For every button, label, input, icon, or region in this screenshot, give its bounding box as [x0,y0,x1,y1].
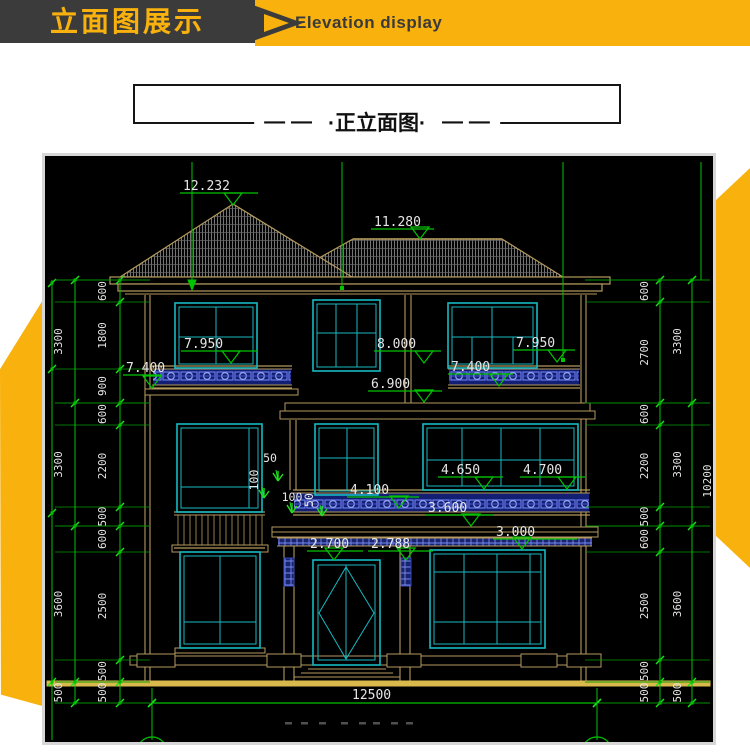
svg-text:3.600: 3.600 [428,501,467,516]
decorative-triangle-right [716,168,750,568]
svg-text:7.950: 7.950 [184,337,223,352]
svg-text:4.700: 4.700 [523,463,562,478]
title-dash-right: — — [442,110,490,134]
svg-text:3300: 3300 [671,451,684,478]
svg-text:7.400: 7.400 [126,361,165,376]
drawing-title: — — ·正立面图· — — [254,107,500,137]
svg-text:3600: 3600 [52,591,65,618]
svg-text:8.000: 8.000 [377,337,416,352]
svg-text:2700: 2700 [638,339,651,366]
play-arrow-icon [253,0,309,51]
svg-text:50: 50 [302,493,316,507]
svg-text:100: 100 [282,490,303,504]
svg-text:3300: 3300 [52,328,65,355]
svg-text:7.950: 7.950 [516,336,555,351]
svg-text:1800: 1800 [96,322,109,349]
svg-text:100: 100 [247,470,261,491]
svg-text:2.700: 2.700 [310,537,349,552]
cad-elevation-panel: 6001800900600220050060025005005003300330… [42,153,716,745]
svg-text:12500: 12500 [352,688,391,703]
svg-text:12.232: 12.232 [183,179,230,194]
title-label: ·正立面图· [328,107,426,137]
svg-text:2200: 2200 [638,453,651,480]
svg-text:600: 600 [638,404,651,424]
svg-text:3600: 3600 [671,591,684,618]
svg-text:600: 600 [96,281,109,301]
page: Elevation display 立面图展示 — — ·正立面图· — — 6… [0,0,750,753]
svg-text:2500: 2500 [638,593,651,620]
svg-text:11.280: 11.280 [374,215,421,230]
svg-text:500: 500 [96,661,109,681]
svg-text:600: 600 [96,529,109,549]
svg-text:4.650: 4.650 [441,463,480,478]
svg-text:50: 50 [263,451,277,465]
header-title-zh: 立面图展示 [0,0,255,43]
svg-text:2500: 2500 [96,593,109,620]
svg-text:500: 500 [96,507,109,527]
svg-text:500: 500 [52,683,65,703]
svg-text:4.100: 4.100 [350,483,389,498]
svg-text:900: 900 [96,376,109,396]
svg-text:600: 600 [96,404,109,424]
svg-text:500: 500 [638,661,651,681]
svg-text:600: 600 [638,281,651,301]
svg-text:6.900: 6.900 [371,377,410,392]
svg-text:600: 600 [638,529,651,549]
svg-text:10200: 10200 [701,464,713,497]
svg-text:3.000: 3.000 [496,525,535,540]
decorative-triangle-left [0,295,46,707]
title-dash-left: — — [264,110,312,134]
cad-drawing: 6001800900600220050060025005005003300330… [45,156,713,742]
header-yellow-band: Elevation display [255,0,750,46]
svg-text:2.788: 2.788 [371,537,410,552]
svg-text:500: 500 [671,683,684,703]
svg-text:500: 500 [638,683,651,703]
header-dark-band: 立面图展示 [0,0,255,43]
svg-text:500: 500 [638,507,651,527]
svg-text:3300: 3300 [671,328,684,355]
drawing-title-box: — — ·正立面图· — — [133,84,621,124]
header-title-en: Elevation display [255,0,750,46]
svg-text:3300: 3300 [52,451,65,478]
svg-text:2200: 2200 [96,453,109,480]
svg-text:500: 500 [96,683,109,703]
svg-text:7.400: 7.400 [451,360,490,375]
